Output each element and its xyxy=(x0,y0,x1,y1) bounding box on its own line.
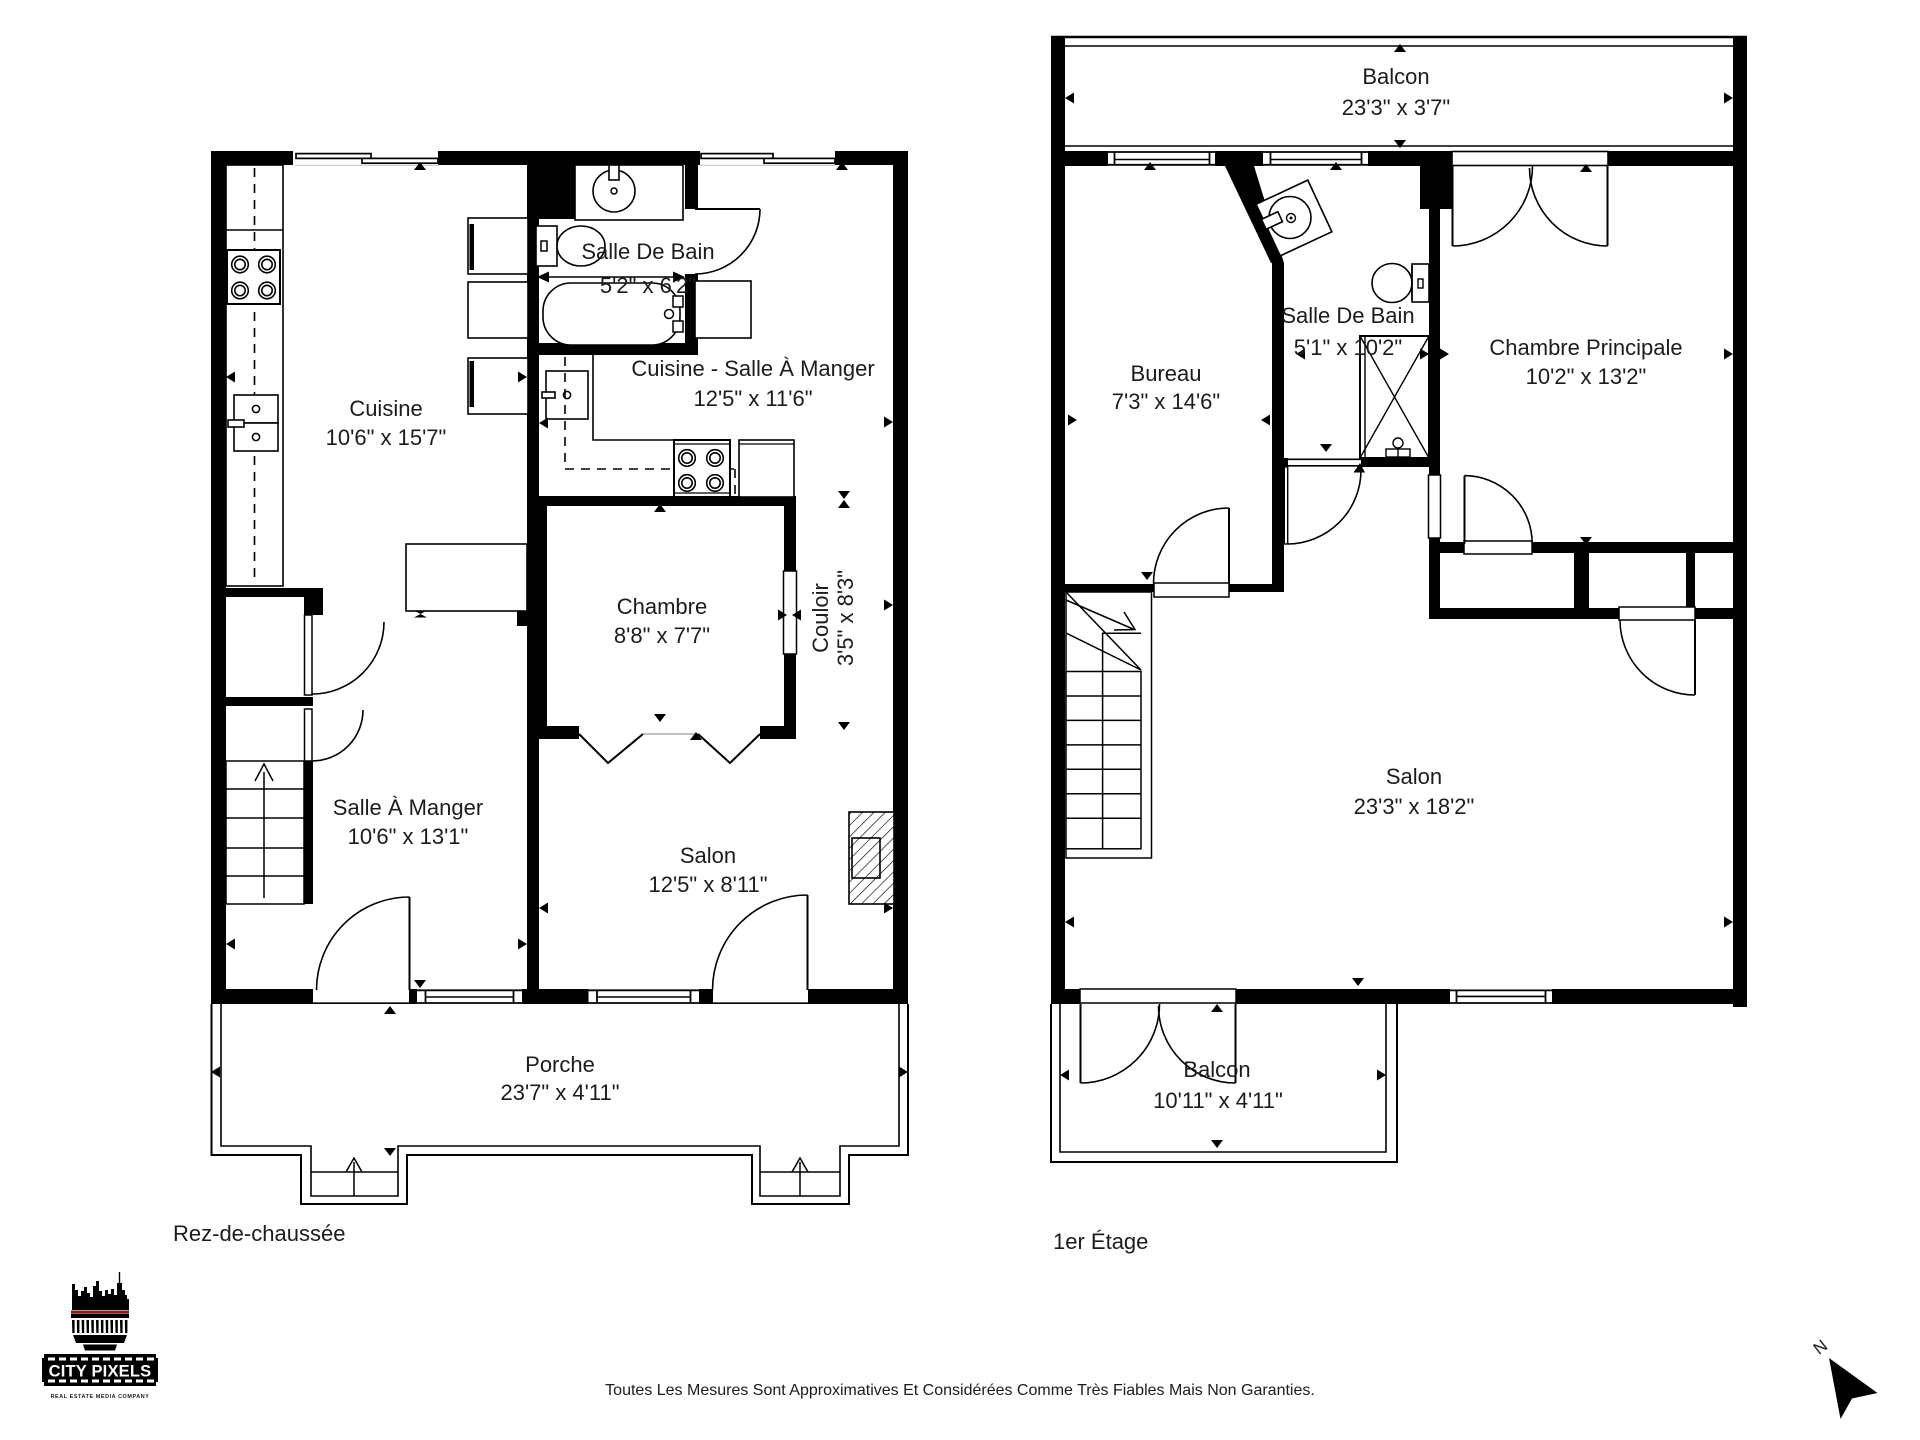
svg-text:8'8" x 7'7": 8'8" x 7'7" xyxy=(614,623,710,648)
svg-text:23'7" x 4'11": 23'7" x 4'11" xyxy=(500,1080,619,1105)
svg-text:5'2" x 6'2": 5'2" x 6'2" xyxy=(600,273,696,298)
svg-text:Chambre Principale: Chambre Principale xyxy=(1489,335,1682,360)
svg-text:Balcon: Balcon xyxy=(1362,64,1429,89)
svg-text:10'2" x 13'2": 10'2" x 13'2" xyxy=(1526,364,1647,389)
svg-text:10'6" x 15'7": 10'6" x 15'7" xyxy=(326,425,447,450)
svg-text:10'6" x 13'1": 10'6" x 13'1" xyxy=(348,824,469,849)
svg-text:Toutes Les Mesures Sont Approx: Toutes Les Mesures Sont Approximatives E… xyxy=(605,1382,1315,1399)
svg-text:Couloir: Couloir xyxy=(808,583,833,653)
svg-text:10'11" x 4'11": 10'11" x 4'11" xyxy=(1153,1088,1283,1113)
svg-text:5'1" x 10'2": 5'1" x 10'2" xyxy=(1294,335,1402,360)
svg-text:7'3" x 14'6": 7'3" x 14'6" xyxy=(1112,389,1220,414)
svg-text:Rez-de-chaussée: Rez-de-chaussée xyxy=(173,1221,345,1246)
svg-text:Cuisine: Cuisine xyxy=(349,396,422,421)
svg-text:23'3" x 18'2": 23'3" x 18'2" xyxy=(1354,794,1475,819)
svg-text:Salon: Salon xyxy=(680,843,736,868)
svg-text:23'3" x 3'7": 23'3" x 3'7" xyxy=(1342,95,1450,120)
svg-text:Salle À Manger: Salle À Manger xyxy=(333,795,483,820)
svg-text:Salle De Bain: Salle De Bain xyxy=(1281,303,1414,328)
svg-text:REAL ESTATE MEDIA COMPANY: REAL ESTATE MEDIA COMPANY xyxy=(51,1394,150,1400)
svg-text:Porche: Porche xyxy=(525,1052,595,1077)
svg-text:3'5" x 8'3": 3'5" x 8'3" xyxy=(833,570,858,666)
svg-text:12'5" x 11'6": 12'5" x 11'6" xyxy=(693,386,812,411)
svg-text:Balcon: Balcon xyxy=(1183,1057,1250,1082)
svg-text:Salon: Salon xyxy=(1386,764,1442,789)
svg-text:Salle De Bain: Salle De Bain xyxy=(581,239,714,264)
svg-text:Chambre: Chambre xyxy=(617,594,707,619)
svg-text:1er Étage: 1er Étage xyxy=(1053,1229,1148,1254)
svg-text:Cuisine - Salle À Manger: Cuisine - Salle À Manger xyxy=(631,356,874,381)
svg-text:12'5" x 8'11": 12'5" x 8'11" xyxy=(648,872,767,897)
svg-text:CITY PIXELS: CITY PIXELS xyxy=(49,1363,152,1381)
svg-text:Bureau: Bureau xyxy=(1131,361,1202,386)
